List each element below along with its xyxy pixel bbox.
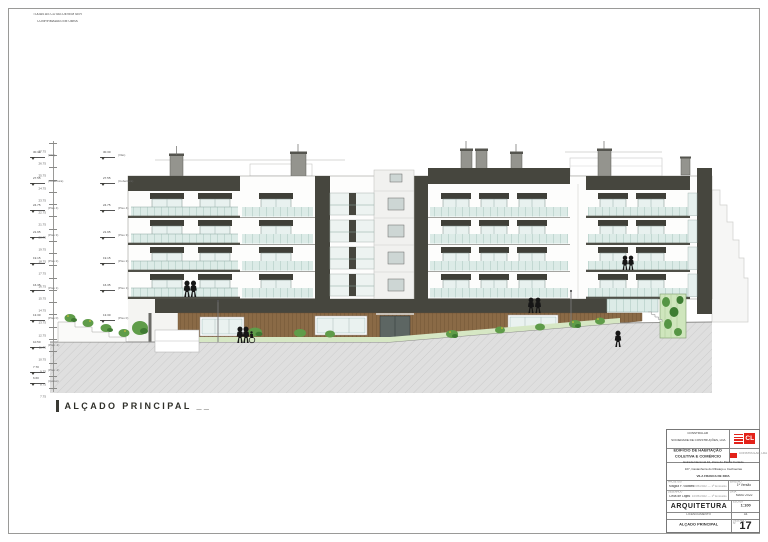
- specialty-field: ARQUITETURA: [667, 501, 731, 512]
- green-trellis: [660, 294, 686, 338]
- level-triangle-icon: [31, 383, 35, 386]
- level-marker: 16.35 (Piso 1): [30, 285, 90, 295]
- title-block: CONSTRULAR SOCIEDADE DE CONSTRUÇÕES, LDA…: [666, 429, 760, 533]
- logo-mini-icon: [730, 453, 737, 458]
- revision-field: EMISSÃO 1ª Versão: [729, 481, 759, 491]
- level-triangle-icon: [31, 290, 35, 293]
- level-marker: 13.30 (Piso 0): [30, 315, 90, 325]
- level-marker: 7.70 (Piso -2): [30, 367, 90, 377]
- level-marker: 13.30 (Piso 0): [100, 315, 160, 325]
- level-triangle-icon: [101, 320, 105, 323]
- level-triangle-icon: [31, 347, 35, 350]
- drawing-sheet: TODAS AS COTAS DEVEM SER CONFIRMADAS EM …: [0, 0, 768, 542]
- level-triangle-icon: [31, 183, 35, 186]
- level-marker: 24.75 (Piso 4): [30, 205, 90, 215]
- scale-field: ESCALA 1:100: [731, 501, 759, 512]
- level-marker: 24.75 (Piso 4): [100, 205, 160, 215]
- level-triangle-icon: [101, 263, 105, 266]
- drawing-title: ALÇADO PRINCIPAL __: [56, 400, 211, 412]
- level-marker: 27.55 (Cobertura): [100, 178, 160, 188]
- sheet-title: ALÇADO PRINCIPAL: [667, 520, 731, 532]
- logo-stripes: [734, 434, 743, 444]
- level-triangle-icon: [101, 210, 105, 213]
- company-name: CONSTRULAR SOCIEDADE DE CONSTRUÇÕES, LDA: [667, 430, 729, 448]
- level-marker: 21.95 (Piso 3): [100, 232, 160, 242]
- format-field: A1: [731, 513, 759, 519]
- stairwell-core: [374, 170, 414, 299]
- level-marker: 16.35 (Piso 1): [100, 285, 160, 295]
- level-triangle-icon: [31, 372, 35, 375]
- level-triangle-icon: [101, 183, 105, 186]
- project-address: Estrada Nacional 10, Zona do Pastor Furt…: [667, 463, 759, 481]
- level-marker: 6.60 (Caves): [30, 378, 90, 388]
- level-marker: 19.15 (Piso 2): [30, 258, 90, 268]
- sheet-number: DESENHO Nº 17: [731, 520, 759, 532]
- level-markers-inner: 30.30 (Vão) 27.55 (Cobertura) 24.75 (Pis…: [100, 0, 160, 542]
- level-marker: 30.30 (Vão): [30, 152, 90, 162]
- drawing-title-text: ALÇADO PRINCIPAL __: [65, 401, 212, 411]
- phase-field: LICENCIAMENTO: [667, 513, 731, 519]
- level-triangle-icon: [31, 157, 35, 160]
- company-logo: CL: [729, 430, 759, 448]
- level-marker: 21.95 (Piso 3): [30, 232, 90, 242]
- level-triangle-icon: [31, 263, 35, 266]
- level-triangle-icon: [101, 157, 105, 160]
- logo-icon: CL: [744, 433, 755, 444]
- date-field: DATA MAIO 2022: [729, 491, 759, 501]
- level-marker: 30.30 (Vão): [100, 152, 160, 162]
- level-marker: 10.50 (Piso -1): [30, 342, 90, 352]
- level-marker: 19.15 (Piso 2): [100, 258, 160, 268]
- level-triangle-icon: [101, 237, 105, 240]
- roof-elements: [155, 141, 691, 176]
- level-triangle-icon: [101, 290, 105, 293]
- title-bar-mark: [56, 400, 59, 412]
- level-markers-left: 30.30 (Vão) 27.55 (Cobertura) 24.75 (Pis…: [30, 0, 90, 542]
- building-facade: [128, 168, 712, 314]
- level-triangle-icon: [31, 237, 35, 240]
- author-field: PROJETOU Magda F. Gomes Data: 10/05/2022…: [667, 481, 728, 491]
- level-marker: 27.55 (Cobertura): [30, 178, 90, 188]
- level-triangle-icon: [31, 210, 35, 213]
- drafter-field: DESENHOU Célia de Lajes Data: 10/05/2022…: [667, 491, 728, 500]
- level-triangle-icon: [31, 320, 35, 323]
- background-building-profile: [712, 190, 748, 322]
